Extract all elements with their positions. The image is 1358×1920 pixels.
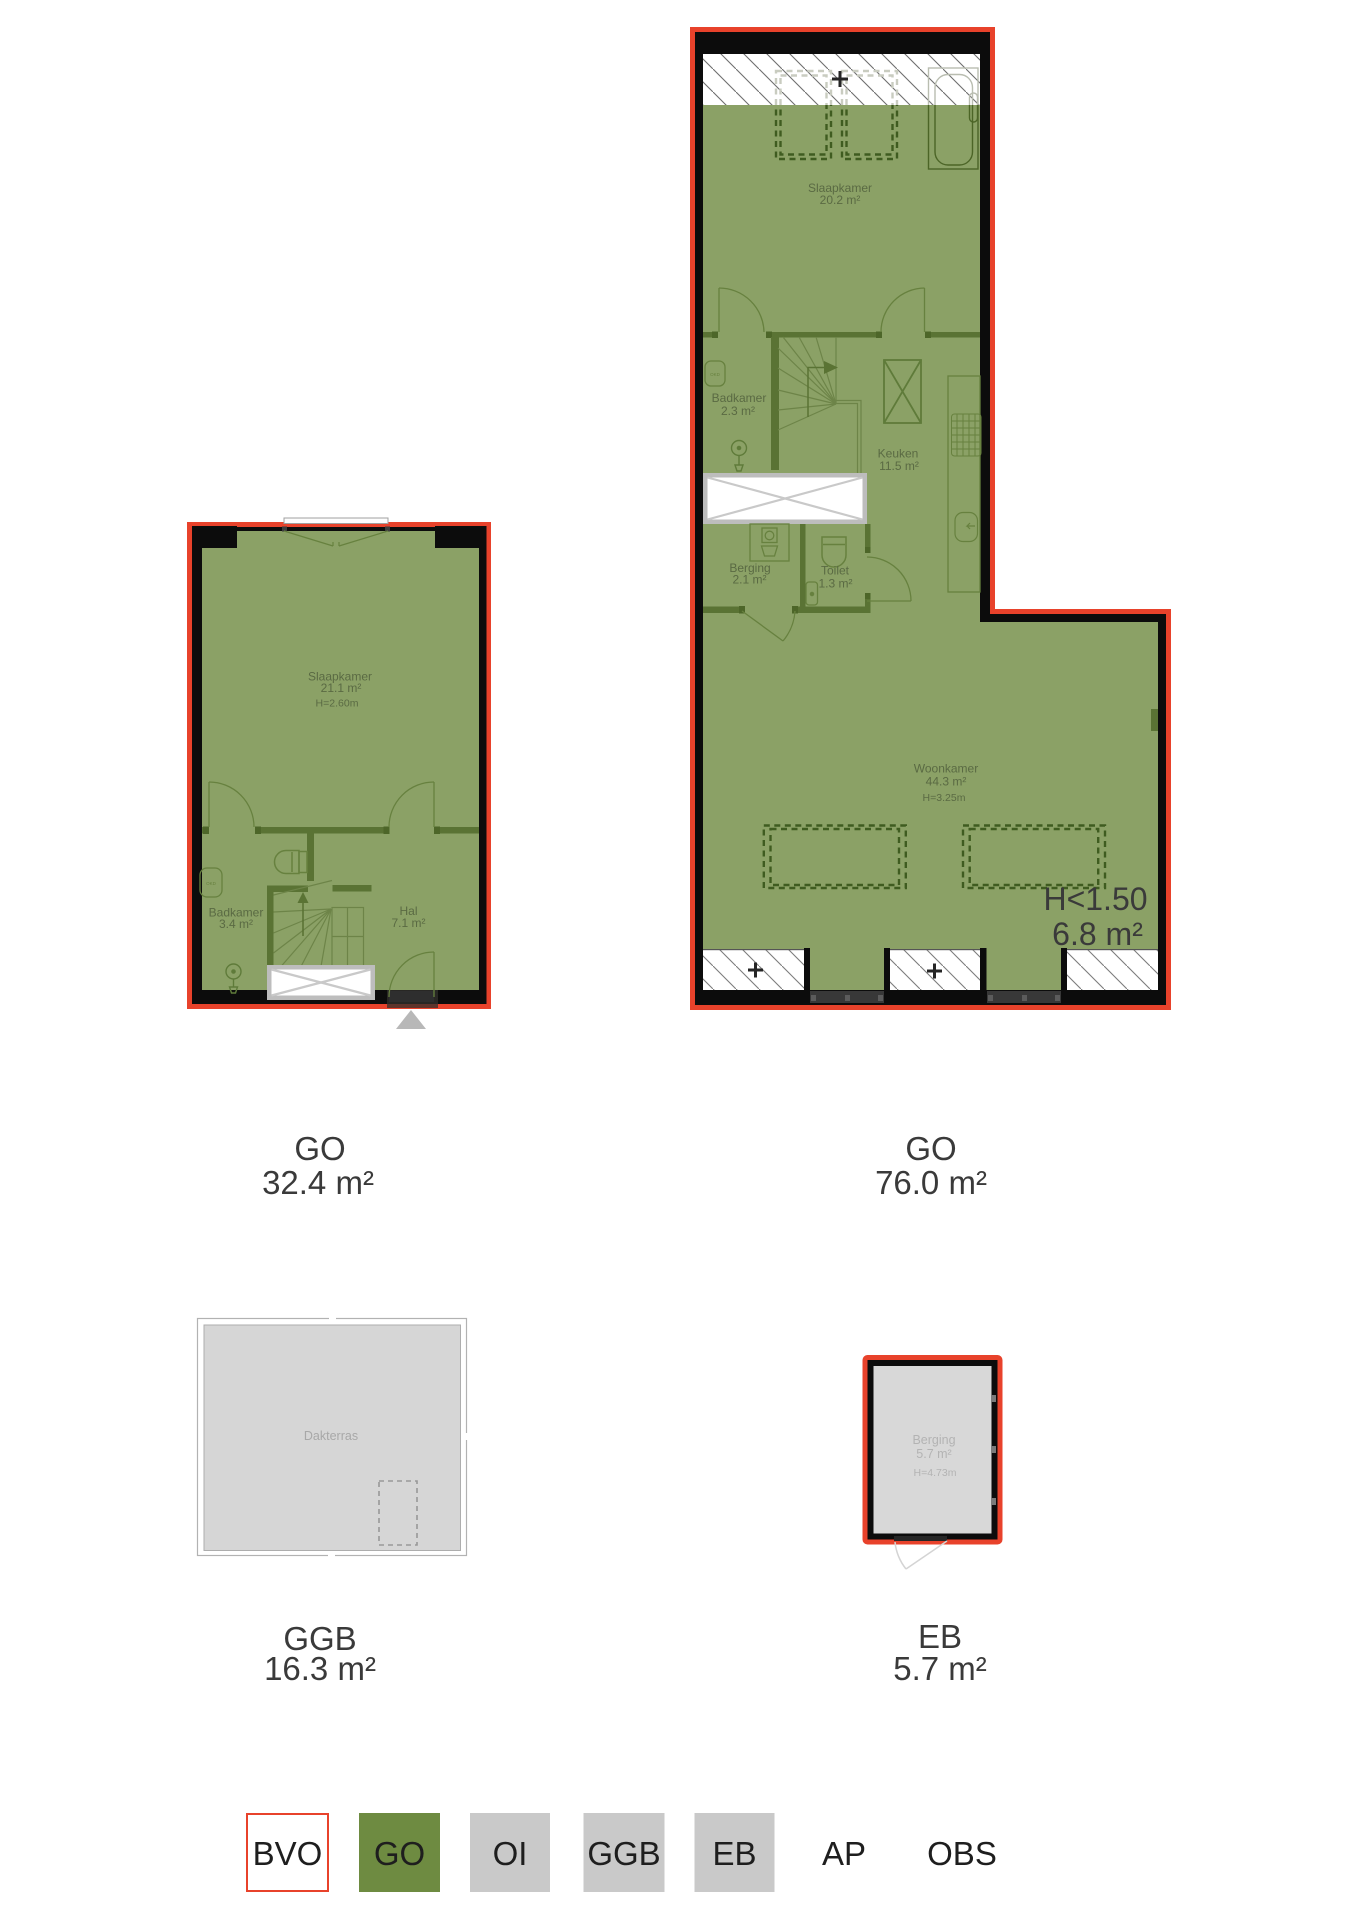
svg-text:Badkamer: Badkamer [712, 391, 767, 405]
svg-text:16.3 m²: 16.3 m² [264, 1650, 376, 1687]
svg-text:2.3 m²: 2.3 m² [721, 404, 755, 418]
svg-text:5.7 m²: 5.7 m² [916, 1447, 951, 1461]
svg-text:OKD: OKD [710, 372, 721, 377]
svg-text:2.1 m²: 2.1 m² [732, 573, 766, 587]
svg-text:GO: GO [374, 1835, 425, 1872]
svg-text:7.1 m²: 7.1 m² [391, 916, 425, 930]
svg-text:H=3.25m: H=3.25m [923, 792, 966, 804]
svg-text:H=4.73m: H=4.73m [914, 1467, 957, 1479]
svg-text:21.1 m²: 21.1 m² [321, 681, 362, 695]
svg-text:11.5 m²: 11.5 m² [879, 459, 919, 473]
svg-text:32.4 m²: 32.4 m² [262, 1164, 374, 1201]
svg-text:H=2.60m: H=2.60m [316, 698, 359, 710]
svg-text:76.0 m²: 76.0 m² [875, 1164, 987, 1201]
svg-text:Woonkamer: Woonkamer [914, 762, 978, 776]
svg-text:OBS: OBS [927, 1835, 997, 1872]
svg-text:OKD: OKD [206, 881, 217, 886]
svg-text:OI: OI [493, 1835, 528, 1872]
svg-text:6.8 m²: 6.8 m² [1052, 916, 1143, 952]
svg-text:1.3 m²: 1.3 m² [818, 577, 852, 591]
svg-text:3.4 m²: 3.4 m² [219, 917, 253, 931]
svg-text:H<1.50: H<1.50 [1043, 881, 1147, 917]
svg-text:GO: GO [905, 1130, 956, 1167]
svg-text:BVO: BVO [253, 1835, 323, 1872]
svg-text:GGB: GGB [587, 1835, 660, 1872]
svg-text:GO: GO [294, 1130, 345, 1167]
svg-text:20.2 m²: 20.2 m² [820, 193, 861, 207]
svg-text:AP: AP [822, 1835, 866, 1872]
svg-text:Toilet: Toilet [821, 564, 850, 578]
svg-text:5.7 m²: 5.7 m² [893, 1650, 987, 1687]
svg-text:Berging: Berging [912, 1433, 955, 1447]
svg-text:44.3 m²: 44.3 m² [926, 775, 967, 789]
svg-text:EB: EB [712, 1835, 756, 1872]
svg-text:Dakterras: Dakterras [304, 1429, 358, 1443]
